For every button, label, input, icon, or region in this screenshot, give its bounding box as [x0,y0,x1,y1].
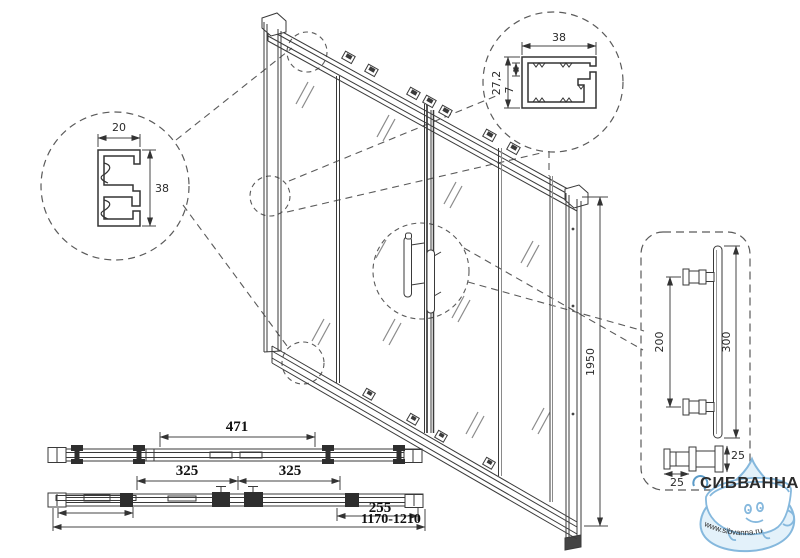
plan-view-bottom [48,487,423,508]
left-profile-reference-circle [250,176,290,216]
profile-serrations [533,63,584,102]
left-wall-profile [264,22,281,352]
logo-brand-text: СИБВАННА [700,475,799,492]
door-assembly [262,13,588,550]
handle-side-view [683,246,722,438]
dim-325-left-label: 325 [176,463,199,479]
dim-200-label: 200 [653,332,666,353]
right-wall-profile [565,193,581,550]
shower-door-technical-drawing: 471 325 325 255 1170-1210 [0,0,800,558]
top-rail-profile-detail: 38 27,2 7 [483,12,623,152]
wall-profile-detail: 20 38 [41,112,189,260]
dim-300-label: 300 [720,332,733,353]
top-rail-cross-section [522,57,596,108]
sibvanna-logo: СИБВАННА www.sibvanna.ru [693,459,799,551]
wall-profile-cross-section [98,150,140,226]
dim-38-left-label: 38 [155,182,169,195]
dim-25-bottom-label: 25 [670,476,684,489]
dim-25-right-label: 25 [731,449,745,462]
dim-width-range-label: 1170-1210 [361,512,421,527]
dim-471-label: 471 [226,419,249,435]
handle-post-top [683,269,714,285]
handle-post-bottom [683,399,714,415]
top-rail-left-cap [262,13,286,36]
dim-325-right-label: 325 [279,463,302,479]
glass-shine-marks [296,82,550,438]
plan-view-top [48,445,422,464]
dim-38-top-label: 38 [552,31,566,44]
dim-1950-label: 1950 [584,348,597,376]
dim-20-label: 20 [112,121,126,134]
dim-27-2-label: 27,2 [490,71,503,96]
handle-post-closeup [664,446,723,472]
door-handles [404,233,441,313]
detail-reference-circles [250,32,469,384]
dim-7-label: 7 [503,87,516,94]
drawing-canvas: 471 325 325 255 1170-1210 [0,0,800,558]
handle-reference-circle [373,223,469,319]
handle-detail: 200 300 25 25 [641,232,750,490]
